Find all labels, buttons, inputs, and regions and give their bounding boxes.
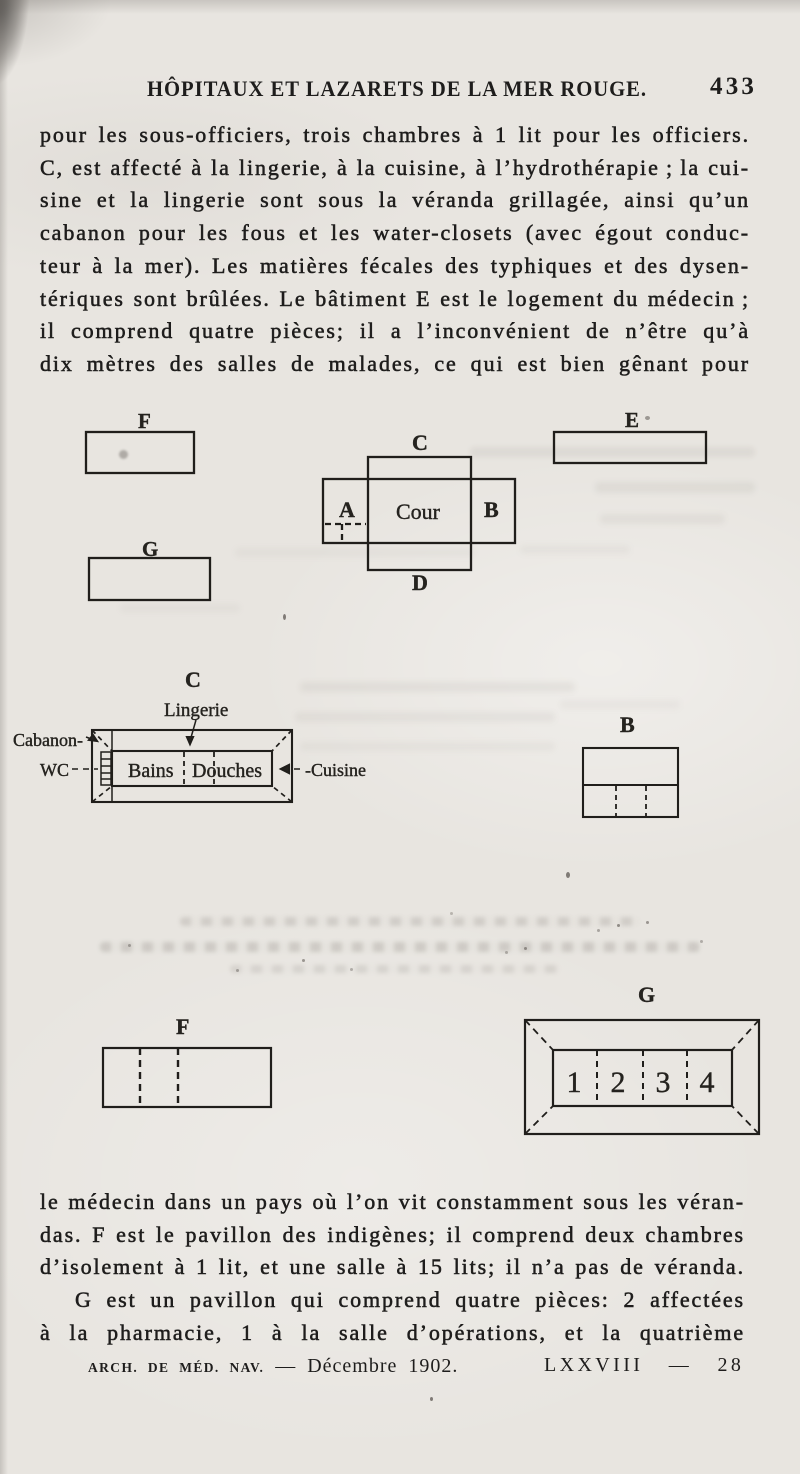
svg-text:B: B: [484, 497, 499, 522]
svg-text:G: G: [638, 982, 655, 1007]
svg-text:WC: WC: [40, 760, 69, 780]
svg-text:F: F: [176, 1014, 189, 1039]
svg-text:E: E: [625, 408, 639, 432]
svg-text:Douches: Douches: [192, 760, 262, 782]
svg-text:-Cuisine: -Cuisine: [305, 760, 366, 780]
svg-text:2: 2: [611, 1066, 626, 1099]
svg-text:1: 1: [567, 1066, 582, 1099]
svg-text:Cabanon-: Cabanon-: [13, 730, 83, 750]
svg-text:F: F: [138, 409, 151, 433]
svg-text:C: C: [185, 667, 201, 692]
svg-text:4: 4: [700, 1066, 715, 1099]
svg-text:C: C: [412, 430, 428, 455]
svg-text:Lingerie: Lingerie: [164, 700, 228, 721]
svg-text:B: B: [620, 712, 635, 737]
svg-text:D: D: [412, 570, 428, 595]
svg-text:3: 3: [656, 1066, 671, 1099]
svg-text:A: A: [339, 497, 355, 522]
svg-text:Bains: Bains: [128, 760, 174, 782]
svg-text:Cour: Cour: [396, 499, 441, 524]
